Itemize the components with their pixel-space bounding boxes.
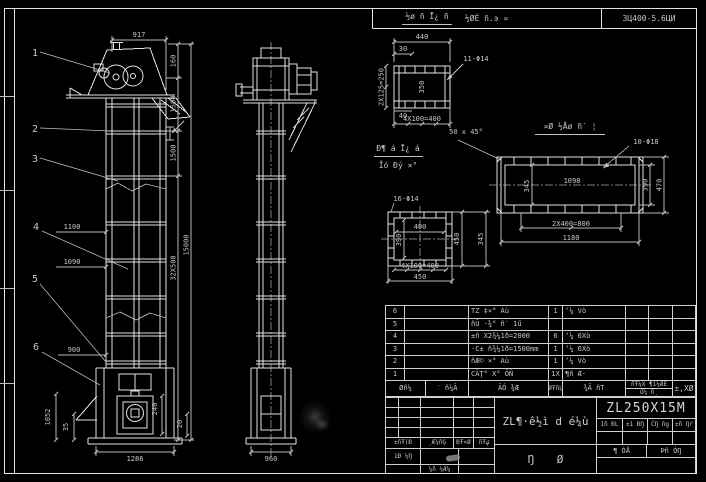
bom-note: [673, 344, 695, 356]
dim-1098: 1098: [564, 177, 581, 185]
bom-name: CÄŢ° X° ÕŇ: [469, 369, 549, 381]
dim-240: 240: [151, 403, 159, 416]
drawing-title: ZL¶·ê½ì d é¼ù: [502, 415, 588, 428]
balloon-6: 6: [33, 342, 39, 353]
drawing-title-cell: ZL¶·ê½ì d é¼ù: [495, 398, 596, 445]
check-label: ¼ñ ¼Æ¼: [421, 465, 459, 474]
bom-header-material: ¾Ã ñT: [563, 381, 626, 396]
bom-w2: [649, 306, 673, 318]
front-casing: [106, 98, 166, 368]
stage-label-1: 1ñ ĐL: [597, 419, 623, 431]
rev-label-mark: ±ñŦ(Đ: [386, 438, 421, 448]
dim-960: 960: [265, 455, 278, 463]
stage-label-row: 1ñ ĐL ±1 ĐŊ ĆŊ ñg ±ñ Ŋŕ: [597, 419, 695, 432]
model-number: ZL250X15M: [606, 401, 685, 416]
holes-11-14: 11-Φ14: [463, 55, 488, 63]
bom-code: [405, 356, 469, 368]
dim-35: 35: [62, 423, 70, 431]
dim-470: 470: [656, 179, 664, 192]
view-label: Đ¶ á Ī¿ á Ĩó Đý ×°: [374, 143, 423, 170]
front-head: [66, 43, 175, 99]
bom-no: 6: [386, 306, 405, 318]
header-cell-2-text: 3Ц400-5.6ЦИ: [623, 14, 676, 23]
bom-qty: 1: [549, 356, 563, 368]
bom-w2: [649, 356, 673, 368]
bom-note: [673, 319, 695, 331]
dim-4x100-b: 4X100=400: [401, 262, 439, 270]
dim-900: 900: [68, 346, 81, 354]
section-main-title: ¤Ø ½Åø ñ′ ¦: [544, 120, 597, 131]
bom-header-weight-top: ñŦ¼X ¶1¼ÆE: [626, 381, 672, 389]
rev-cell: [386, 398, 399, 407]
balloon-4: 4: [33, 222, 39, 233]
dim-32x500: 32X500: [170, 255, 178, 280]
stage-label-3: ĆŊ ñg: [648, 419, 673, 431]
titleblock-right: ZL250X15M 1ñ ĐL ±1 ĐŊ ĆŊ ñg ±ñ Ŋŕ ¶ ÓÅ Þ…: [596, 398, 695, 474]
dim-1500-a: 1500: [170, 96, 178, 113]
bom-material: ʻ¼ Vò: [563, 356, 626, 368]
bom-name: ñŪ ·¾° ñ′ 1ű: [469, 319, 549, 331]
bom-row: 3 ·C± ñ¾¼1ð=1500mm 1 ʻ¼ 6Xò: [386, 344, 695, 357]
bom-material: [563, 319, 626, 331]
rev-cell: [399, 428, 421, 437]
bom-code: [405, 369, 469, 381]
balloon-5: 5: [32, 274, 38, 285]
bom-row: 1 CÄŢ° X° ÕŇ 1X ¶ñ Æ·: [386, 369, 695, 382]
rev-cell: [399, 418, 421, 427]
stage-value-cell: [673, 432, 695, 444]
bom-material: ʻ¼ 6Xò: [563, 331, 626, 343]
cad-sheet: 1 2 3 4 5 6 917 160 1500 1500 32X500 150…: [0, 0, 706, 482]
balloon-1: 1: [32, 48, 38, 59]
rev-cell: [454, 418, 474, 427]
rev-cell: [474, 408, 494, 417]
header-cell-1-text: ½ØÉ ñ.э ¤: [465, 14, 508, 23]
dim-15000: 15000: [183, 234, 191, 255]
bom-row: 2 ñÆ© ×° Aù 1 ʻ¼ Vò: [386, 356, 695, 369]
dim-350: 350: [418, 81, 426, 94]
rev-row: [386, 428, 494, 438]
bom-w2: [649, 331, 673, 343]
bom-row: 6 TZ ‡×° Aù 1 ʻ¼ Vò: [386, 306, 695, 319]
bom-note: [673, 306, 695, 318]
design-label: 1Đ ¼Ŋ: [386, 449, 421, 464]
rev-cell: [386, 418, 399, 427]
rev-cell: [386, 408, 399, 417]
bom-qty: 1: [549, 306, 563, 318]
sheet-no: Þñ ÓŊ: [647, 445, 695, 457]
dim-20: 20: [176, 420, 184, 428]
bom-w1: [626, 369, 649, 381]
front-pulley: [94, 64, 143, 89]
rev-cell: [474, 398, 494, 407]
bom-code: [405, 331, 469, 343]
bom-name: ±ñ X2¾¼1ð=2000: [469, 331, 549, 343]
titleblock-empty-cell: [597, 458, 695, 474]
rev-cell: [474, 418, 494, 427]
design-date-cell: [459, 449, 494, 464]
rev-cell: [421, 418, 454, 427]
dim-345: 345: [523, 180, 531, 193]
sheet-row: ¶ ÓÅ Þñ ÓŊ: [597, 445, 695, 458]
bom-no: 2: [386, 356, 405, 368]
holes-10-18: 10-Φ18: [633, 138, 658, 146]
bom-no: 5: [386, 319, 405, 331]
stage-label-2: ±1 ĐŊ: [623, 419, 648, 431]
bom-w2: [649, 344, 673, 356]
model-cell: ZL250X15M: [597, 398, 695, 419]
bom-header-no: Øñ¼: [386, 381, 426, 396]
balloon-2: 2: [32, 124, 38, 135]
bom-qty: 6: [549, 331, 563, 343]
bom-header-weight: ñŦ¼X ¶1¼ÆE Õ¼ ñ¸: [626, 381, 673, 396]
bom-qty: 1X: [549, 369, 563, 381]
title-block: ±ñŦ(Đ ¸Æ¼ñĢ ĐŦ×Ø ñŦؼ 1Đ ¼Ŋ ¼ñ ¼Æ¼ ZL¶·ê½…: [385, 397, 696, 474]
dim-2x400: 2X400=800: [552, 220, 590, 228]
header-cell-1: ½ØÉ ñ.э ¤: [372, 8, 601, 29]
bom-table: 6 TZ ‡×° Aù 1 ʻ¼ Vò 5 ñŪ ·¾° ñ′ 1ű 4 ±ñ …: [385, 305, 696, 397]
check-row: ¼ñ ¼Æ¼: [386, 465, 494, 474]
bom-no: 4: [386, 331, 405, 343]
bom-code: [405, 306, 469, 318]
bom-w1: [626, 356, 649, 368]
dim-1090: 1090: [64, 258, 81, 266]
dim-450-r: 450: [453, 233, 461, 246]
dim-1100: 1100: [64, 223, 81, 231]
rev-cell: [386, 428, 399, 437]
rev-cell: [454, 398, 474, 407]
rev-cell: [454, 408, 474, 417]
bom-note: [673, 356, 695, 368]
bom-qty: [549, 319, 563, 331]
rev-row: [386, 408, 494, 418]
dim-390: 390: [642, 179, 650, 192]
bom-w1: [626, 306, 649, 318]
bom-row: 5 ñŪ ·¾° ñ′ 1ű: [386, 319, 695, 332]
dim-4x100-a: 4X100=400: [403, 115, 441, 123]
stage-value-cell: [623, 432, 648, 444]
dim-400: 400: [414, 223, 427, 231]
bom-header-row: Øñ¼ ′ ñ¼Ã ÃÓ ¾Æ ØŦñĻ ¾Ã ñT ñŦ¼X ¶1¼ÆE Õ¼…: [386, 381, 695, 396]
bom-code: [405, 319, 469, 331]
bom-no: 3: [386, 344, 405, 356]
dim-390-sq: 390: [395, 234, 403, 247]
bom-qty: 1: [549, 344, 563, 356]
chamfer-note: 50 x 45°: [449, 128, 499, 159]
dim-917: 917: [133, 31, 146, 39]
bom-header-note: ±,XØ: [673, 381, 695, 396]
chamfer-text: 50 x 45°: [449, 128, 483, 136]
bom-w1: [626, 319, 649, 331]
drawing-subtitle: Ŋ Ø: [528, 453, 564, 466]
bom-header-weight-sub: Õ¼ ñ¸: [626, 389, 672, 396]
dim-160: 160: [170, 55, 178, 68]
front-view: 1 2 3 4 5 6 917 160 1500 1500 32X500 150…: [32, 31, 194, 463]
side-head: [236, 48, 317, 100]
boot-inspection-port: [127, 405, 144, 422]
bom-w2: [649, 369, 673, 381]
drawing-subtitle-cell: Ŋ Ø: [495, 445, 596, 474]
rev-label-sign: ĐŦ×Ø: [454, 438, 474, 448]
dim-440: 440: [416, 33, 429, 41]
dim-450-b: 450: [414, 273, 427, 281]
bom-row: 4 ±ñ X2¾¼1ð=2000 6 ʻ¼ 6Xò: [386, 331, 695, 344]
titleblock-middle: ZL¶·ê½ì d é¼ù Ŋ Ø: [494, 398, 596, 474]
dim-30: 30: [399, 45, 407, 53]
balloon-3: 3: [32, 154, 38, 165]
bom-note: [673, 331, 695, 343]
design-row: 1Đ ¼Ŋ: [386, 449, 494, 465]
bom-material: ʻ¼ 6Xò: [563, 344, 626, 356]
bom-w1: [626, 344, 649, 356]
bom-name: TZ ‡×° Aù: [469, 306, 549, 318]
rev-cell: [399, 398, 421, 407]
sheet-total: ¶ ÓÅ: [597, 445, 647, 457]
dim-1286: 1286: [127, 455, 144, 463]
rev-label-zone: ¸Æ¼ñĢ: [421, 438, 454, 448]
bom-name: ·C± ñ¾¼1ð=1500mm: [469, 344, 549, 356]
bom-no: 1: [386, 369, 405, 381]
side-view: 960: [236, 42, 317, 463]
front-boot: [76, 368, 182, 444]
side-platform-bracket: [243, 100, 317, 152]
bom-w1: [626, 331, 649, 343]
section-square-flange: 16-Φ14 400 390 4X100=400 450 450 345: [381, 195, 490, 284]
view-label-line2: Ĩó Đý ×°: [379, 160, 418, 170]
check-cell: [386, 465, 421, 474]
balloon-leaders: [40, 52, 128, 385]
dim-345-r: 345: [477, 233, 485, 246]
rev-cell: [454, 428, 474, 437]
dim-1180: 1180: [563, 234, 580, 242]
rev-cell: [421, 428, 454, 437]
check-date-cell: [459, 465, 494, 474]
rev-label-row: ±ñŦ(Đ ¸Æ¼ñĢ ĐŦ×Ø ñŦؼ: [386, 438, 494, 449]
header-cell-2: 3Ц400-5.6ЦИ: [601, 8, 697, 29]
rev-row: [386, 398, 494, 408]
stage-value-cell: [648, 432, 673, 444]
stage-value-cell: [597, 432, 623, 444]
bom-material: ʻ¼ Vò: [563, 306, 626, 318]
rev-cell: [421, 408, 454, 417]
stage-label-4: ±ñ Ŋŕ: [673, 419, 695, 431]
rev-cell: [474, 428, 494, 437]
titleblock-left: ±ñŦ(Đ ¸Æ¼ñĢ ĐŦ×Ø ñŦؼ 1Đ ¼Ŋ ¼ñ ¼Æ¼: [386, 398, 494, 474]
rev-label-date: ñŦؼ: [474, 438, 494, 448]
section-main-flange: ¤Ø ½Åø ñ′ ¦ 10-Φ18 1098 345 390 470 2X40…: [489, 120, 669, 246]
rev-cell: [421, 398, 454, 407]
holes-16-14: 16-Φ14: [393, 195, 418, 203]
dim-2x125: 2X125=250: [378, 68, 386, 106]
bom-material: ¶ñ Æ·: [563, 369, 626, 381]
stage-value-row: [597, 432, 695, 445]
rev-row: [386, 418, 494, 428]
bom-name: ñÆ© ×° Aù: [469, 356, 549, 368]
bom-header-name: ÃÓ ¾Æ: [469, 381, 549, 396]
bom-header-code: ′ ñ¼Ã: [426, 381, 469, 396]
bom-header-qty: ØŦñĻ: [549, 381, 563, 396]
dim-1500-b: 1500: [170, 145, 178, 162]
view-label-line1: Đ¶ á Ī¿ á: [376, 143, 420, 153]
bom-code: [405, 344, 469, 356]
dim-1052: 1052: [44, 409, 52, 426]
bom-note: [673, 369, 695, 381]
bom-w2: [649, 319, 673, 331]
rev-cell: [399, 408, 421, 417]
